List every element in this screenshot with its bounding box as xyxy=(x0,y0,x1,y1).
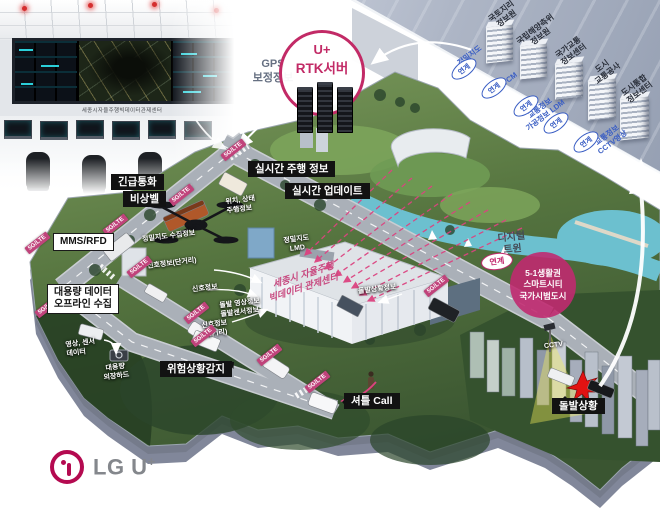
text-video-sensor-data: 영상, 센서데이터 xyxy=(65,337,97,359)
agency-building xyxy=(555,62,583,100)
network-tag: 5G/LTE xyxy=(24,232,50,255)
label-realtime-driving-info: 실시간 주행 정보 xyxy=(248,161,335,177)
smart-city-circle: 5-1생활권스마트시티국가시범도시 xyxy=(510,252,576,318)
text-incident-info: 돌발상황정보 xyxy=(358,283,397,297)
network-tag: 5G/LTE xyxy=(256,344,282,367)
crosswalk xyxy=(100,266,114,278)
lg-symbol-icon xyxy=(50,450,84,484)
text-precision-map-collect: 정밀지도 수집정보 xyxy=(142,229,196,245)
label-mms-rfd: MMS/RFD xyxy=(53,233,114,251)
pedestrian xyxy=(368,371,374,389)
text-precision-map-lmd: 정밀지도LMD xyxy=(283,233,311,254)
control-room-caption: 세종시자율주행빅데이터관제센터 xyxy=(0,106,244,114)
label-bigdata-offline: 대용량 데이터오프라인 수집 xyxy=(47,284,119,314)
truck xyxy=(337,295,364,317)
control-room-photo: 세종시자율주행빅데이터관제센터 xyxy=(0,0,244,198)
label-danger-detection: 위험상황감지 xyxy=(160,361,232,377)
car xyxy=(144,283,168,303)
control-room-ceiling xyxy=(0,0,244,40)
label-emergency-call: 긴급통화 xyxy=(111,174,164,190)
digital-twin-label: 디지털트윈 xyxy=(489,230,535,257)
text-cctv: CCTV xyxy=(544,340,564,351)
video-wall-left-tiles xyxy=(15,41,77,101)
glass-building xyxy=(248,228,274,258)
city-towers xyxy=(470,332,660,446)
bridge xyxy=(575,222,648,246)
arc-building xyxy=(391,129,470,166)
city-district-ground xyxy=(460,290,660,462)
video-wall xyxy=(12,38,238,104)
video-wall-right-tiles xyxy=(173,41,235,101)
text-signal-info: 신호정보 xyxy=(192,282,219,294)
network-tag: 5G/LTE xyxy=(423,275,449,298)
text-position-status: 위치, 상태주행정보 xyxy=(225,194,257,216)
sejong-autonomous-driving-infographic: 세종시자율주행빅데이터관제센터 xyxy=(0,0,660,517)
label-realtime-update: 실시간 업데이트 xyxy=(285,183,370,199)
hard-drive-icon xyxy=(110,350,128,361)
black-van xyxy=(428,297,461,323)
brt-bus xyxy=(163,200,210,233)
text-signal-short-range: 신호정보(단거리) xyxy=(147,256,197,271)
cctv-camera-icon xyxy=(543,323,555,331)
agency-building xyxy=(486,25,513,64)
called-shuttle xyxy=(307,392,338,415)
control-center-building-text: 세종시 자율주행 빅데이터 관제센터 xyxy=(255,253,354,310)
lg-uplus-logo: LG U+ xyxy=(50,450,156,484)
text-external-hdd: 대용량외장하드 xyxy=(102,361,130,382)
text-incident-video-sensor: 돌발 영상정보돌발센서정보 xyxy=(219,297,262,320)
label-incident: 돌발상황 xyxy=(552,398,605,414)
accident-car-white xyxy=(547,367,575,386)
label-emergency-bell: 비상벨 xyxy=(123,191,166,207)
accident-car-black xyxy=(587,379,615,398)
agency-building xyxy=(588,79,616,121)
video-wall-satellite-map xyxy=(77,41,173,101)
label-shuttle-call: 셔틀 Call xyxy=(344,393,400,409)
server-racks-icon xyxy=(297,82,355,133)
network-tag: 5G/LTE xyxy=(304,371,330,394)
